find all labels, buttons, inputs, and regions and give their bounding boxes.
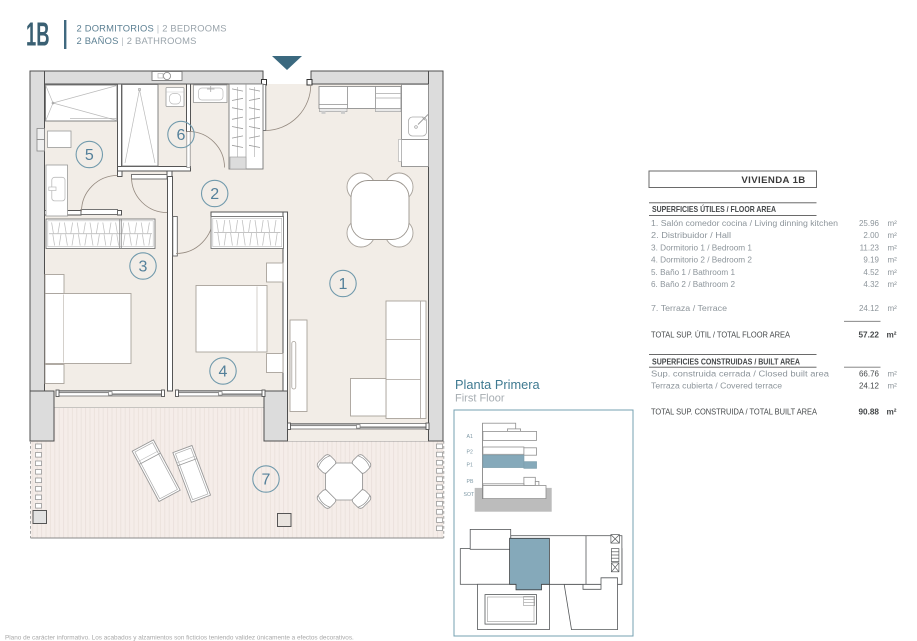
svg-text:24.12: 24.12 (859, 304, 880, 313)
svg-text:Planta Primera: Planta Primera (455, 377, 541, 392)
svg-text:VIVIENDA 1B: VIVIENDA 1B (741, 175, 805, 186)
svg-text:6. Baño 2 / Bathroom 2: 6. Baño 2 / Bathroom 2 (651, 280, 736, 289)
svg-text:5: 5 (85, 147, 94, 164)
svg-text:m²: m² (888, 382, 898, 391)
svg-text:TOTAL SUP. CONSTRUIDA / TOTAL: TOTAL SUP. CONSTRUIDA / TOTAL BUILT AREA (651, 408, 817, 417)
svg-text:Sup. construida cerrada / Clos: Sup. construida cerrada / Closed built a… (651, 369, 830, 378)
svg-text:4.32: 4.32 (863, 280, 879, 289)
svg-text:2 BAÑOS | 2 BATHROOMS: 2 BAÑOS | 2 BATHROOMS (77, 35, 197, 46)
svg-text:m²: m² (887, 331, 897, 340)
svg-text:1: 1 (339, 276, 348, 293)
svg-text:1. Salón comedor cocina / Livi: 1. Salón comedor cocina / Living dinning… (651, 219, 838, 228)
svg-text:3: 3 (139, 259, 148, 276)
svg-text:4.52: 4.52 (863, 268, 879, 277)
svg-text:m²: m² (888, 256, 898, 265)
svg-text:57.22: 57.22 (859, 331, 880, 340)
svg-text:11.23: 11.23 (860, 243, 880, 252)
svg-text:90.88: 90.88 (859, 408, 880, 417)
svg-text:7: 7 (262, 472, 271, 489)
svg-text:1B: 1B (26, 17, 50, 54)
svg-text:P2: P2 (467, 450, 473, 456)
svg-text:P1: P1 (467, 463, 473, 469)
svg-text:2. Distribuidor / Hall: 2. Distribuidor / Hall (651, 231, 731, 240)
svg-text:Terraza cubierta / Covered ter: Terraza cubierta / Covered terrace (651, 382, 783, 391)
svg-text:7. Terraza / Terrace: 7. Terraza / Terrace (651, 304, 728, 313)
svg-text:TOTAL SUP. ÚTIL / TOTAL FLOOR: TOTAL SUP. ÚTIL / TOTAL FLOOR AREA (651, 330, 790, 340)
svg-text:m²: m² (888, 304, 898, 313)
svg-text:m²: m² (888, 231, 898, 240)
svg-text:SUPERFICIES CONSTRUIDAS / BUIL: SUPERFICIES CONSTRUIDAS / BUILT AREA (652, 357, 800, 366)
svg-text:2 DORMITORIOS | 2 BEDROOMS: 2 DORMITORIOS | 2 BEDROOMS (77, 23, 227, 34)
svg-text:m²: m² (888, 280, 898, 289)
svg-text:25.96: 25.96 (859, 219, 880, 228)
svg-text:9.19: 9.19 (863, 256, 879, 265)
svg-text:m²: m² (887, 408, 897, 417)
svg-text:Plano de carácter informativo.: Plano de carácter informativo. Los acaba… (5, 635, 354, 641)
svg-text:A1: A1 (467, 434, 473, 440)
svg-text:3. Dormitorio 1 / Bedroom 1: 3. Dormitorio 1 / Bedroom 1 (651, 243, 753, 252)
svg-text:2.00: 2.00 (863, 231, 879, 240)
svg-text:2: 2 (210, 186, 219, 203)
svg-text:m²: m² (888, 268, 898, 277)
svg-text:PB: PB (467, 479, 474, 485)
svg-text:6: 6 (177, 127, 186, 144)
svg-text:First Floor: First Floor (455, 393, 505, 405)
svg-text:4. Dormitorio 2 / Bedroom 2: 4. Dormitorio 2 / Bedroom 2 (651, 256, 753, 265)
svg-text:SUPERFICIES ÚTILES / FLOOR ARE: SUPERFICIES ÚTILES / FLOOR AREA (652, 203, 776, 214)
svg-text:4: 4 (219, 364, 228, 381)
svg-text:24.12: 24.12 (859, 382, 880, 391)
svg-text:m²: m² (888, 243, 898, 252)
svg-text:66.76: 66.76 (859, 369, 880, 378)
svg-text:5. Baño 1 / Bathroom 1: 5. Baño 1 / Bathroom 1 (651, 268, 736, 277)
svg-text:m²: m² (888, 369, 898, 378)
svg-text:m²: m² (888, 219, 898, 228)
svg-text:SOT: SOT (464, 492, 475, 498)
